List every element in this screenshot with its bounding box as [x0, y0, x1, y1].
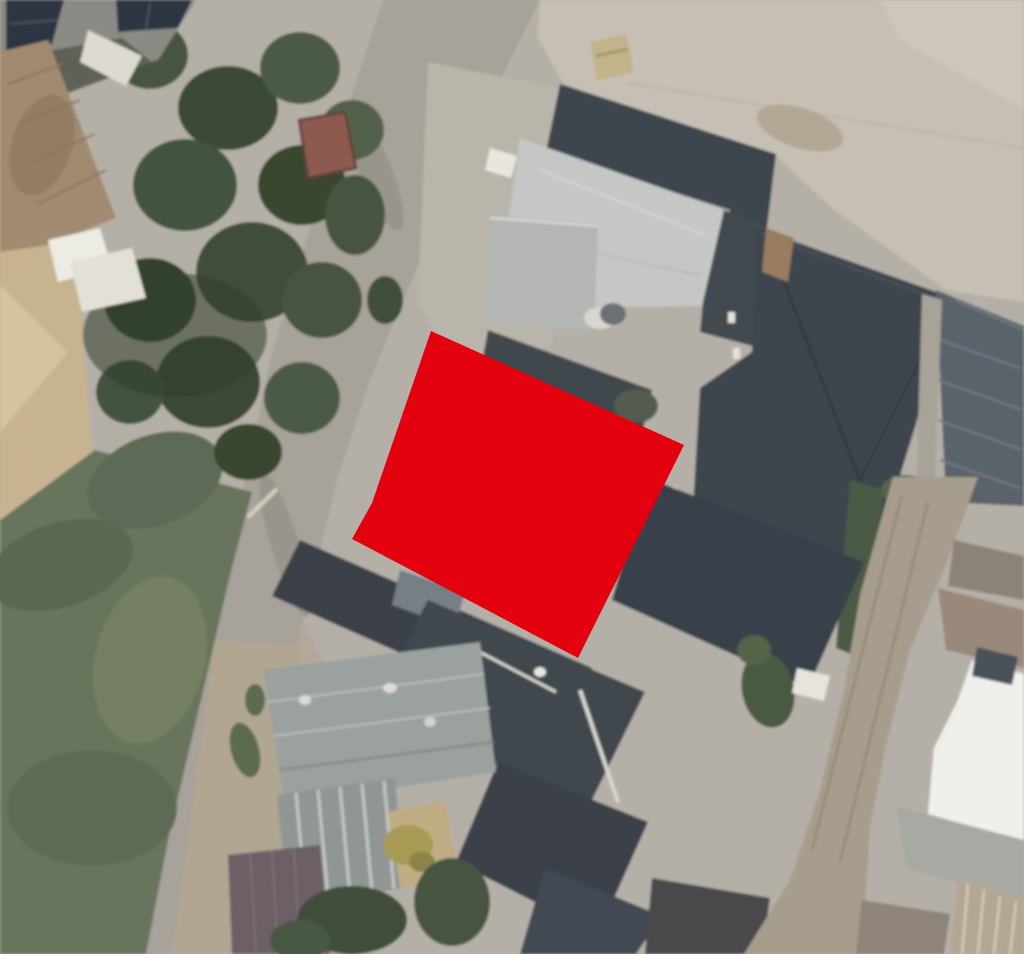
greenhouse-speck-3: [424, 717, 436, 727]
greenhouse-speck-1: [299, 695, 311, 705]
rust-shed: [299, 112, 356, 178]
shoulder-weeds-2: [245, 684, 265, 716]
fence-dash-2: [733, 348, 740, 359]
tree-canopy-13: [214, 424, 282, 480]
bottom-bushes-2: [414, 858, 490, 946]
compound-bush-2: [737, 635, 771, 665]
aerial-imagery-canvas: [0, 0, 1024, 954]
tree-canopy-11: [264, 362, 340, 434]
tree-canopy-4: [133, 139, 237, 231]
fence-dash-1: [728, 312, 735, 323]
tree-canopy-15: [367, 276, 403, 324]
metal-roof-annex: [486, 216, 598, 330]
tree-canopy-14: [325, 175, 385, 255]
tree-canopy-9: [282, 262, 362, 338]
green-field-dark-patch-2: [7, 750, 177, 866]
tree-canopy-3: [260, 32, 340, 104]
aerial-map-view: [0, 0, 1024, 954]
rooftop-vent-white: [534, 667, 546, 677]
greenhouse-speck-2: [383, 683, 397, 693]
rooftop-fan-unit: [600, 303, 626, 325]
